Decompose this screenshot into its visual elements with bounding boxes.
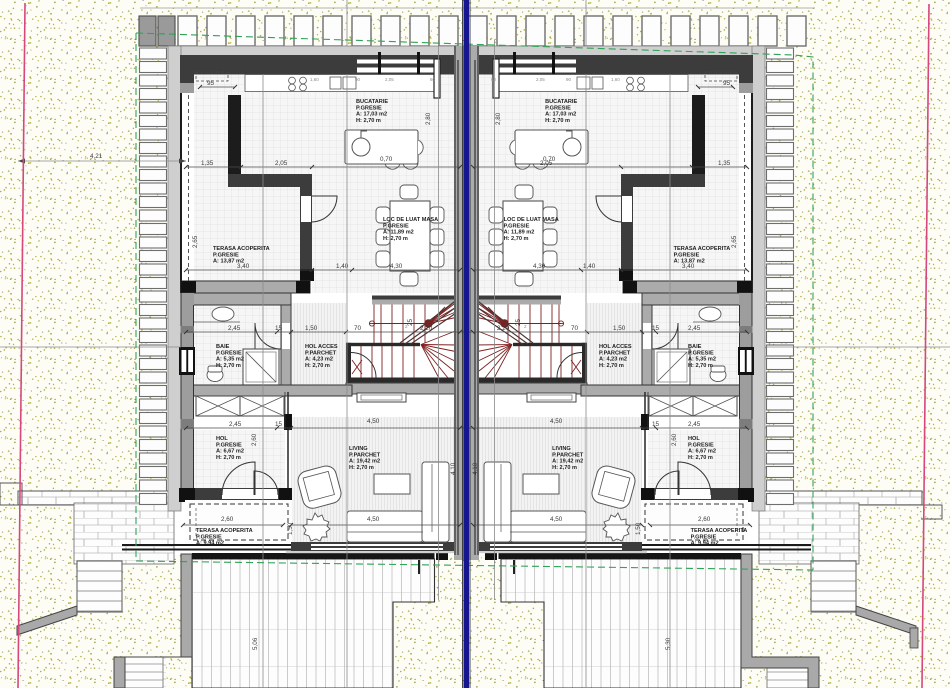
- svg-text:BAIE: BAIE: [216, 344, 230, 350]
- svg-text:60: 60: [430, 77, 436, 82]
- svg-text:P.GRESIE: P.GRESIE: [688, 350, 714, 356]
- svg-text:70: 70: [571, 325, 579, 332]
- svg-text:A: 5,35 m2: A: 5,35 m2: [688, 357, 716, 363]
- svg-text:P.GRESIE: P.GRESIE: [691, 534, 717, 540]
- svg-text:HOL ACCES: HOL ACCES: [305, 344, 338, 350]
- svg-text:LIVING: LIVING: [349, 446, 368, 452]
- svg-text:2,20: 2,20: [420, 325, 433, 332]
- svg-text:A: 9,94 m2: A: 9,94 m2: [196, 541, 224, 547]
- svg-text:BAIE: BAIE: [688, 344, 702, 350]
- svg-text:25: 25: [515, 318, 522, 326]
- svg-text:P.GRESIE: P.GRESIE: [504, 223, 530, 229]
- svg-text:90: 90: [566, 77, 572, 82]
- svg-text:5,30: 5,30: [665, 637, 672, 650]
- svg-text:BUCATARIE: BUCATARIE: [356, 99, 388, 105]
- svg-text:TERASA ACOPERITA: TERASA ACOPERITA: [691, 528, 748, 534]
- svg-text:95: 95: [207, 80, 215, 87]
- svg-text:2,45: 2,45: [688, 325, 701, 332]
- svg-text:LOC DE LUAT MASA: LOC DE LUAT MASA: [383, 217, 438, 223]
- svg-text:2,05: 2,05: [385, 77, 394, 82]
- svg-text:25: 25: [407, 318, 414, 326]
- svg-text:2,80: 2,80: [495, 112, 502, 125]
- svg-text:A: 6,67 m2: A: 6,67 m2: [216, 449, 244, 455]
- svg-text:15: 15: [275, 421, 283, 428]
- svg-text:P.PARCHET: P.PARCHET: [305, 350, 337, 356]
- svg-text:2,65: 2,65: [192, 235, 199, 248]
- svg-text:1,50: 1,50: [613, 325, 626, 332]
- svg-text:BUCATARIE: BUCATARIE: [545, 99, 577, 105]
- svg-text:0,70: 0,70: [380, 156, 393, 163]
- svg-text:4,50: 4,50: [367, 516, 380, 523]
- svg-text:2,60: 2,60: [671, 433, 678, 446]
- svg-text:2,05: 2,05: [536, 77, 545, 82]
- svg-text:H: 2,70 m: H: 2,70 m: [688, 363, 713, 369]
- svg-text:P.GRESIE: P.GRESIE: [674, 252, 700, 258]
- svg-text:15: 15: [275, 325, 283, 332]
- svg-text:A: 4,23 m2: A: 4,23 m2: [305, 357, 333, 363]
- svg-text:P.GRESIE: P.GRESIE: [216, 350, 242, 356]
- svg-text:H: 2,70 m: H: 2,70 m: [383, 236, 408, 242]
- svg-text:H: 2,70 m: H: 2,70 m: [356, 118, 381, 124]
- svg-text:15: 15: [652, 325, 660, 332]
- svg-text:2,45: 2,45: [229, 421, 242, 428]
- svg-text:1,40: 1,40: [583, 263, 596, 270]
- svg-text:H: 2,70 m: H: 2,70 m: [349, 465, 374, 471]
- svg-text:LIVING: LIVING: [552, 446, 571, 452]
- svg-text:H: 2,70 m: H: 2,70 m: [599, 363, 624, 369]
- svg-text:H: 2,70 m: H: 2,70 m: [305, 363, 330, 369]
- svg-text:2,20: 2,20: [497, 325, 510, 332]
- svg-text:HOL: HOL: [688, 436, 700, 442]
- svg-text:3,40: 3,40: [682, 263, 695, 270]
- svg-text:4,10: 4,10: [450, 462, 457, 475]
- svg-text:2,60: 2,60: [221, 516, 234, 523]
- svg-text:H: 2,70 m: H: 2,70 m: [504, 236, 529, 242]
- svg-text:A: 17,03 m2: A: 17,03 m2: [356, 112, 387, 118]
- svg-text:1,60: 1,60: [310, 77, 319, 82]
- svg-text:H: 2,70 m: H: 2,70 m: [216, 363, 241, 369]
- svg-text:2,60: 2,60: [251, 433, 258, 446]
- svg-text:1,35: 1,35: [201, 160, 214, 167]
- svg-text:0,70: 0,70: [543, 156, 556, 163]
- svg-text:1,50: 1,50: [635, 522, 642, 535]
- svg-text:P.GRESIE: P.GRESIE: [356, 105, 382, 111]
- svg-text:A: 5,35 m2: A: 5,35 m2: [216, 357, 244, 363]
- svg-text:H: 2,70 m: H: 2,70 m: [216, 455, 241, 461]
- svg-text:A: 19,42 m2: A: 19,42 m2: [349, 459, 380, 465]
- svg-text:4,50: 4,50: [550, 418, 563, 425]
- svg-text:2,80: 2,80: [425, 112, 432, 125]
- svg-text:HOL: HOL: [216, 436, 228, 442]
- svg-text:P.PARCHET: P.PARCHET: [349, 452, 381, 458]
- svg-text:3,40: 3,40: [237, 263, 250, 270]
- svg-text:A: 17,03 m2: A: 17,03 m2: [545, 112, 576, 118]
- svg-text:4,21: 4,21: [90, 153, 103, 160]
- svg-text:H: 2,70 m: H: 2,70 m: [552, 465, 577, 471]
- svg-text:2,45: 2,45: [688, 421, 701, 428]
- svg-text:90: 90: [355, 77, 361, 82]
- svg-text:TERASA ACOPERITA: TERASA ACOPERITA: [213, 246, 270, 252]
- svg-text:2,65: 2,65: [731, 235, 738, 248]
- svg-text:HOL ACCES: HOL ACCES: [599, 344, 632, 350]
- svg-text:P.GRESIE: P.GRESIE: [216, 442, 242, 448]
- svg-text:P.GRESIE: P.GRESIE: [213, 252, 239, 258]
- svg-text:95: 95: [723, 80, 731, 87]
- svg-text:4,30: 4,30: [390, 263, 403, 270]
- svg-text:A: 4,23 m2: A: 4,23 m2: [599, 357, 627, 363]
- svg-text:4,50: 4,50: [367, 418, 380, 425]
- svg-text:A: 11,89 m2: A: 11,89 m2: [383, 230, 414, 236]
- svg-text:P.GRESIE: P.GRESIE: [383, 223, 409, 229]
- svg-text:4,30: 4,30: [533, 263, 546, 270]
- svg-text:2,60: 2,60: [698, 516, 711, 523]
- svg-text:4,50: 4,50: [550, 516, 563, 523]
- svg-text:1,50: 1,50: [305, 325, 318, 332]
- svg-text:60: 60: [491, 77, 497, 82]
- svg-text:A: 11,89 m2: A: 11,89 m2: [504, 230, 535, 236]
- svg-text:H: 2,70 m: H: 2,70 m: [688, 455, 713, 461]
- svg-text:2,05: 2,05: [275, 160, 288, 167]
- svg-text:5,06: 5,06: [252, 637, 259, 650]
- svg-text:1,50: 1,50: [287, 522, 294, 535]
- svg-text:TERASA ACOPERITA: TERASA ACOPERITA: [196, 528, 253, 534]
- svg-text:A: 9,94 m2: A: 9,94 m2: [691, 541, 719, 547]
- svg-text:P.GRESIE: P.GRESIE: [196, 534, 222, 540]
- svg-text:1,35: 1,35: [718, 160, 731, 167]
- svg-text:70: 70: [354, 325, 362, 332]
- svg-text:P.PARCHET: P.PARCHET: [599, 350, 631, 356]
- svg-text:2,45: 2,45: [228, 325, 241, 332]
- svg-text:P.GRESIE: P.GRESIE: [688, 442, 714, 448]
- svg-text:P.GRESIE: P.GRESIE: [545, 105, 571, 111]
- svg-text:15: 15: [652, 421, 660, 428]
- svg-text:1,60: 1,60: [611, 77, 620, 82]
- svg-text:H: 2,70 m: H: 2,70 m: [545, 118, 570, 124]
- svg-text:4,10: 4,10: [472, 462, 479, 475]
- svg-text:TERASA ACOPERITA: TERASA ACOPERITA: [674, 246, 731, 252]
- svg-text:A: 6,67 m2: A: 6,67 m2: [688, 449, 716, 455]
- svg-text:A: 19,42 m2: A: 19,42 m2: [552, 459, 583, 465]
- svg-text:P.PARCHET: P.PARCHET: [552, 452, 584, 458]
- svg-text:LOC DE LUAT MASA: LOC DE LUAT MASA: [504, 217, 559, 223]
